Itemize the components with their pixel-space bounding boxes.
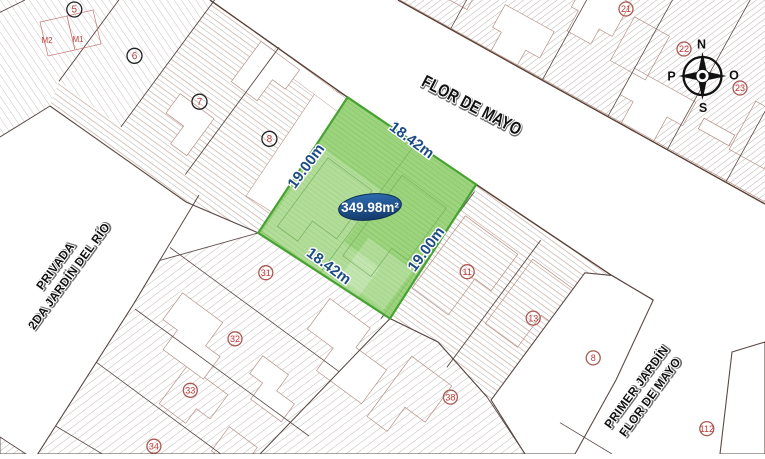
svg-text:38: 38 [445,392,455,402]
svg-text:N: N [697,38,706,52]
svg-text:112: 112 [700,424,714,434]
svg-text:M2: M2 [41,36,53,45]
svg-text:O: O [729,69,739,83]
svg-text:8: 8 [267,134,273,145]
svg-text:31: 31 [261,268,271,278]
svg-text:7: 7 [197,97,203,108]
svg-text:13: 13 [528,313,538,323]
svg-text:34: 34 [149,441,159,451]
svg-text:8: 8 [591,353,596,363]
svg-text:5: 5 [72,5,78,16]
svg-text:P: P [667,70,675,84]
svg-text:6: 6 [132,51,138,62]
svg-text:23: 23 [735,83,745,93]
svg-text:22: 22 [679,44,689,54]
svg-text:33: 33 [185,386,195,396]
svg-text:32: 32 [230,334,240,344]
svg-text:349.98m²: 349.98m² [341,200,399,215]
svg-text:S: S [699,101,707,115]
svg-text:21: 21 [621,4,631,14]
svg-text:11: 11 [463,267,472,277]
svg-text:M1: M1 [72,35,84,44]
